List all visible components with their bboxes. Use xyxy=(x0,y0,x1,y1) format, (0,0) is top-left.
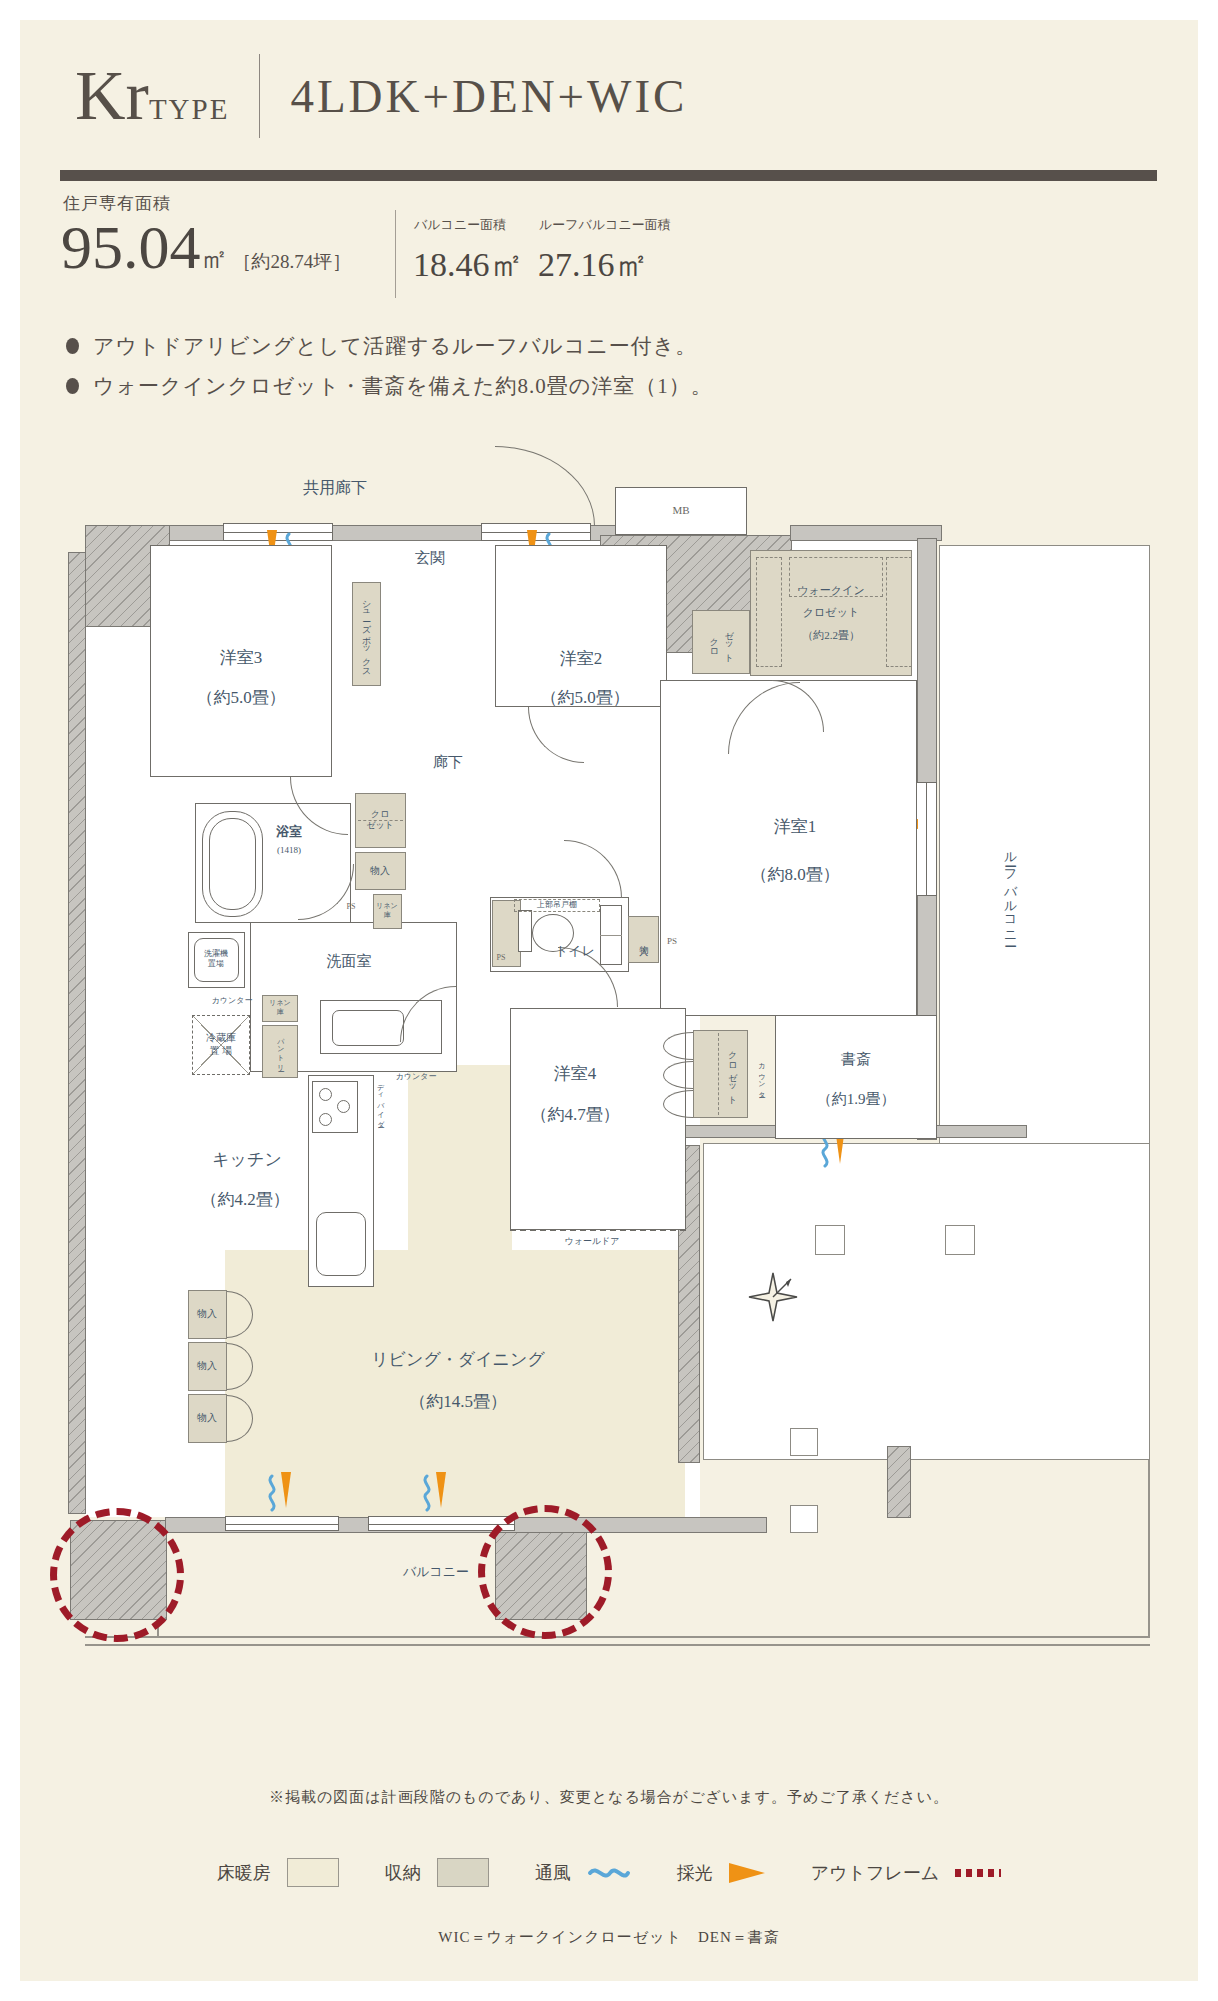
floor-heating-living xyxy=(225,1250,685,1525)
bedroom3-label: 洋室3 xyxy=(220,647,263,668)
divider-label: ディバイダー xyxy=(376,1079,385,1125)
burner-icon xyxy=(319,1088,332,1101)
type-name: Kr xyxy=(75,61,149,131)
feature-text-1: アウトドアリビングとして活躍するルーフバルコニー付き。 xyxy=(93,332,697,360)
daylight-legend-icon xyxy=(729,1863,765,1883)
floor-plan: クロ ゼット xyxy=(58,430,1162,1680)
outframe-legend-icon xyxy=(955,1869,1001,1877)
ventilation-icon xyxy=(265,1474,279,1512)
bedroom2-label: 洋室2 xyxy=(560,648,603,669)
outframe-circle-left xyxy=(50,1508,184,1642)
counter-label: カウンター xyxy=(212,996,253,1006)
common-corridor-label: 共用廊下 xyxy=(303,478,367,498)
legend-daylight-label: 採光 xyxy=(677,1861,713,1885)
title-bar: Kr TYPE 4LDK+DEN+WIC xyxy=(75,54,687,138)
roof-balcony-label: ルーフバルコニー xyxy=(1002,844,1018,941)
storage-living-label: 物入 xyxy=(197,1308,217,1321)
room-den xyxy=(775,1015,937,1139)
bedroom4-size: （約4.7畳） xyxy=(530,1104,619,1125)
den-size: （約1.9畳） xyxy=(817,1090,896,1109)
washer-label: 洗濯機 置場 xyxy=(204,949,228,969)
ps-label: PS xyxy=(667,936,677,947)
burner-icon xyxy=(337,1100,350,1113)
storage-hall-label: 物入 xyxy=(370,865,390,878)
balcony-edge-line xyxy=(85,1636,1150,1638)
exclusive-area-value: 95.04㎡ ［約28.74坪］ xyxy=(61,216,351,278)
pantry-label: パントリー xyxy=(276,1033,285,1070)
balcony-area-value: 18.46㎡ xyxy=(413,242,524,288)
wall-door-line xyxy=(510,1229,686,1231)
legend-outframe-label: アウトフレーム xyxy=(811,1861,940,1885)
exclusive-area-tsubo: ［約28.74坪］ xyxy=(233,251,352,272)
terrace-drain xyxy=(815,1225,845,1255)
mb-label: MB xyxy=(672,504,689,518)
linen-line2: 庫 xyxy=(376,911,398,920)
storage2-label: 物入 xyxy=(637,938,648,940)
window-bedroom1 xyxy=(915,782,937,896)
closet4-divider-line xyxy=(718,1033,719,1115)
linen-hall-label: リネン 庫 xyxy=(376,902,398,920)
linen-line2: 庫 xyxy=(269,1008,291,1017)
kitchen-label: キッチン xyxy=(212,1149,282,1170)
feature-item-1: アウトドアリビングとして活躍するルーフバルコニー付き。 xyxy=(66,332,697,360)
abbreviation-footnote: WIC＝ウォークインクローゼット DEN＝書斎 xyxy=(20,1928,1198,1947)
wic-hanger xyxy=(886,557,912,667)
linen-wash-label: リネン 庫 xyxy=(269,999,291,1017)
legend-storage-label: 収納 xyxy=(385,1861,421,1885)
room-bedroom2 xyxy=(495,545,667,707)
storage-living-label: 物入 xyxy=(197,1360,217,1373)
bedroom1-label: 洋室1 xyxy=(774,816,817,837)
bedroom2-size: （約5.0畳） xyxy=(540,687,629,708)
washroom-label: 洗面室 xyxy=(327,952,372,971)
exclusive-area-unit: ㎡ xyxy=(201,243,229,274)
stats-divider xyxy=(395,210,396,298)
vanity-sink xyxy=(332,1010,404,1046)
counter-label-2: カウンター xyxy=(396,1072,437,1082)
window-west-bedroom3 xyxy=(223,523,333,541)
wic-size: （約2.2畳） xyxy=(802,629,860,643)
balcony-edge-line xyxy=(85,1644,1150,1646)
west-wall xyxy=(68,552,86,1514)
balcony-label: バルコニー xyxy=(403,1564,469,1580)
closet-hall-line1: クロ xyxy=(366,809,394,820)
ps-label: PS xyxy=(347,902,356,912)
legend-row: 床暖房 収納 通風 採光 アウトフレーム xyxy=(20,1858,1198,1887)
linen-line1: リネン xyxy=(269,999,291,1008)
burner-icon xyxy=(319,1113,332,1126)
fridge-label: 冷蔵庫 置 場 xyxy=(206,1032,236,1057)
closet-label: ゼット xyxy=(722,625,735,659)
daylight-icon xyxy=(281,1472,291,1508)
storage-swatch-icon xyxy=(437,1858,489,1887)
fridge-line2: 置 場 xyxy=(206,1044,236,1057)
east-wall-upper xyxy=(917,538,937,784)
daylight-icon xyxy=(436,1472,446,1508)
terrace-drain xyxy=(790,1505,818,1533)
wall-door-label: ウォールドア xyxy=(564,1236,619,1247)
title-divider xyxy=(259,54,260,138)
shoe-box-label: シューズボックス xyxy=(360,594,371,674)
legend-floor-heating-label: 床暖房 xyxy=(217,1861,271,1885)
ventilation-icon xyxy=(420,1474,434,1512)
linen-line1: リネン xyxy=(376,902,398,911)
closet-hall-line2: ゼット xyxy=(366,820,394,831)
type-word: TYPE xyxy=(149,93,230,126)
compass-icon xyxy=(746,1270,800,1324)
ventilation-legend-icon xyxy=(587,1864,631,1882)
layout-title: 4LDK+DEN+WIC xyxy=(290,69,687,123)
wic-label-2: クロゼット xyxy=(803,606,859,620)
closet-bedroom4 xyxy=(693,1030,748,1118)
toilet-label: トイレ xyxy=(555,943,595,959)
cream-canvas: Kr TYPE 4LDK+DEN+WIC 住戸専有面積 95.04㎡ ［約28.… xyxy=(20,20,1198,1981)
closet-hall-label: クロ ゼット xyxy=(366,809,394,832)
den-label: 書斎 xyxy=(841,1050,871,1069)
storage-living-label: 物入 xyxy=(197,1412,217,1425)
entrance-label: 玄関 xyxy=(415,549,445,568)
brochure-page: Kr TYPE 4LDK+DEN+WIC 住戸専有面積 95.04㎡ ［約28.… xyxy=(0,0,1218,2001)
exclusive-area-number: 95.04 xyxy=(61,213,201,281)
bathtub-inner xyxy=(209,818,256,910)
bath-size: (1418) xyxy=(277,845,301,856)
roof-balcony-area-label: ルーフバルコニー面積 xyxy=(539,216,671,234)
header-rule xyxy=(60,170,1157,181)
terrace-drain xyxy=(945,1225,975,1255)
bedroom3-size: （約5.0畳） xyxy=(196,687,285,708)
floor-heating-swatch-icon xyxy=(287,1858,339,1887)
stove xyxy=(312,1081,358,1133)
type-title: Kr TYPE xyxy=(75,61,229,131)
washer-line1: 洗濯機 xyxy=(204,949,228,959)
upper-cabinet-label: 上部吊戸棚 xyxy=(537,900,577,910)
bath-label: 浴室 xyxy=(276,824,302,840)
bullet-icon xyxy=(66,338,79,354)
closet4-label: クロゼット xyxy=(726,1045,737,1101)
bullet-icon xyxy=(66,378,79,394)
living-size: （約14.5畳） xyxy=(409,1391,507,1412)
toilet-tank xyxy=(518,910,532,952)
disclaimer-note: ※掲載の図面は計画段階のものであり、変更となる場合がございます。予めご了承くださ… xyxy=(20,1788,1198,1807)
roof-balcony-area-value: 27.16㎡ xyxy=(538,242,649,288)
ps-label: PS xyxy=(497,953,506,963)
closet-label: クロ xyxy=(707,631,720,654)
entry-door-arc xyxy=(495,446,595,526)
balcony-stub-wall xyxy=(887,1446,911,1518)
counter-label-3: カウンター xyxy=(757,1059,766,1096)
toilet-shelf-line xyxy=(600,935,622,936)
terrace-drain xyxy=(790,1428,818,1456)
kitchen-sink xyxy=(316,1212,366,1276)
living-label: リビング・ダイニング xyxy=(371,1349,545,1370)
feature-text-2: ウォークインクロゼット・書斎を備えた約8.0畳の洋室（1）。 xyxy=(93,372,713,400)
feature-item-2: ウォークインクロゼット・書斎を備えた約8.0畳の洋室（1）。 xyxy=(66,372,713,400)
wic-hanger xyxy=(756,557,782,667)
closet-bedroom2: クロ ゼット xyxy=(692,610,750,674)
balcony-area-label: バルコニー面積 xyxy=(414,216,506,234)
window-living-left xyxy=(225,1516,339,1531)
bedroom4-label: 洋室4 xyxy=(554,1063,597,1084)
corridor-label: 廊下 xyxy=(433,753,463,772)
legend-ventilation-label: 通風 xyxy=(535,1861,571,1885)
balcony-edge-line xyxy=(1148,1460,1150,1638)
outframe-circle-middle xyxy=(478,1505,612,1639)
exclusive-area-label: 住戸専有面積 xyxy=(63,192,171,215)
kitchen-size: （約4.2畳） xyxy=(200,1189,289,1210)
washer-line2: 置場 xyxy=(204,959,228,969)
wic-label-1: ウォークイン xyxy=(797,584,864,598)
bedroom1-size: （約8.0畳） xyxy=(750,864,839,885)
fridge-line1: 冷蔵庫 xyxy=(206,1032,236,1045)
